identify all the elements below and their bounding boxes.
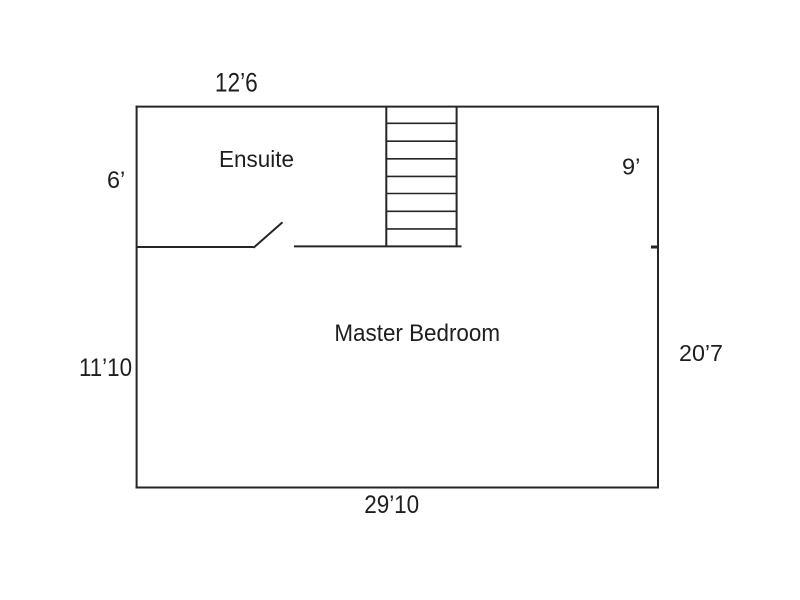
svg-text:6’: 6’ xyxy=(107,167,125,194)
svg-text:20’7: 20’7 xyxy=(679,340,723,366)
svg-text:11’10: 11’10 xyxy=(79,354,132,382)
svg-text:9’: 9’ xyxy=(622,154,640,180)
svg-text:29’10: 29’10 xyxy=(364,491,419,519)
svg-text:12’6: 12’6 xyxy=(215,68,258,98)
svg-text:Master Bedroom: Master Bedroom xyxy=(334,320,500,347)
svg-text:Ensuite: Ensuite xyxy=(219,146,294,172)
